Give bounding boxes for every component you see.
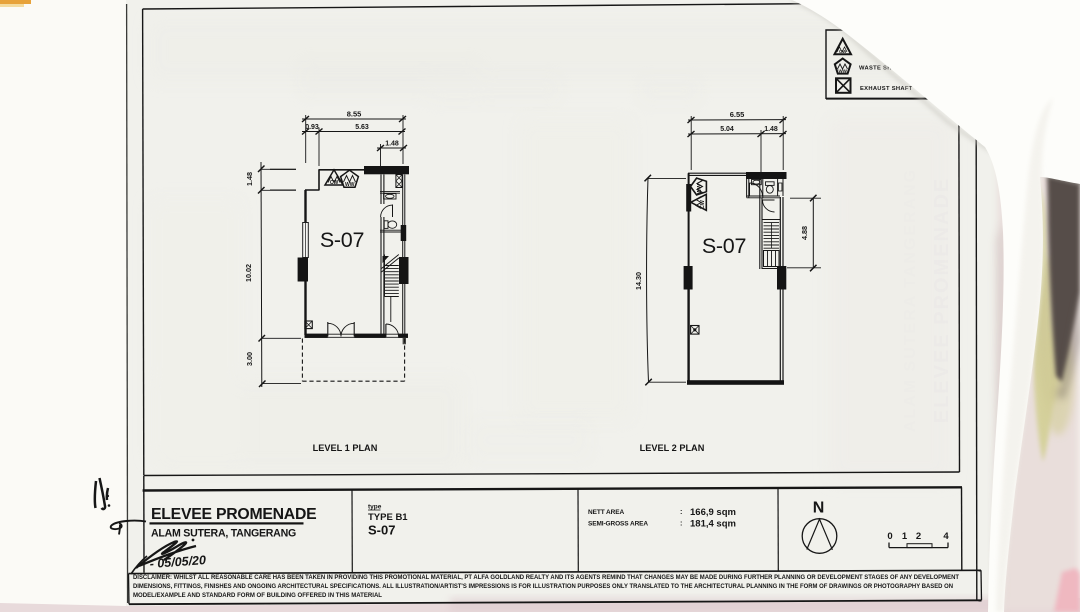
svg-text:CW: CW	[839, 49, 847, 54]
svg-text:ELEVEE PROMENADE: ELEVEE PROMENADE	[931, 177, 953, 423]
svg-text:WW: WW	[838, 69, 847, 74]
svg-text:SEMI-GROSS AREA: SEMI-GROSS AREA	[588, 521, 648, 528]
svg-text:3.00: 3.00	[245, 352, 254, 366]
svg-text:S-07: S-07	[702, 234, 746, 258]
svg-text:166,9 sqm: 166,9 sqm	[690, 507, 736, 518]
svg-text:ALAM SUTERA TANGERANG: ALAM SUTERA TANGERANG	[902, 168, 919, 432]
svg-text:1.48: 1.48	[764, 126, 778, 133]
svg-text:14.30: 14.30	[634, 272, 643, 290]
svg-text::: :	[680, 519, 682, 528]
svg-text:6.55: 6.55	[730, 110, 745, 119]
svg-text:type: type	[368, 504, 382, 511]
svg-text:WW: WW	[697, 184, 703, 194]
svg-text:4.88: 4.88	[800, 226, 809, 240]
svg-text:ELEVEE PROMENADE: ELEVEE PROMENADE	[151, 506, 316, 523]
svg-text:N: N	[813, 500, 825, 517]
svg-text:ALAM SUTERA, TANGERANG: ALAM SUTERA, TANGERANG	[151, 528, 296, 540]
svg-text:181,4 sqm: 181,4 sqm	[690, 519, 736, 530]
svg-text:1.48: 1.48	[385, 141, 399, 148]
svg-text:DISCLAIMER: WHILST ALL REASONA: DISCLAIMER: WHILST ALL REASONABLE CARE H…	[133, 574, 959, 581]
svg-text:8.55: 8.55	[347, 110, 362, 119]
svg-text:NETT AREA: NETT AREA	[588, 509, 624, 516]
svg-text:S-07: S-07	[320, 228, 364, 252]
svg-text:2: 2	[916, 531, 921, 542]
svg-text:CW: CW	[700, 200, 706, 209]
svg-text:1: 1	[902, 531, 908, 542]
svg-text:LEVEL 1 PLAN: LEVEL 1 PLAN	[313, 443, 378, 453]
svg-text:WW: WW	[345, 182, 355, 188]
svg-text:TYPE B1: TYPE B1	[368, 512, 408, 523]
svg-text:1.48: 1.48	[245, 172, 254, 186]
svg-text:5.04: 5.04	[720, 126, 734, 133]
svg-text:5.63: 5.63	[355, 124, 369, 131]
svg-text:10.02: 10.02	[244, 264, 253, 282]
svg-text:MODEL/EXAMPLE AND STANDARD FOR: MODEL/EXAMPLE AND STANDARD FORM OF BUILD…	[133, 592, 382, 599]
svg-text:DIMENSIONS, FITTINGS, FINISHES: DIMENSIONS, FITTINGS, FINISHES AND ONGOI…	[133, 583, 953, 590]
svg-text:LEVEL 2 PLAN: LEVEL 2 PLAN	[640, 443, 705, 453]
svg-text:0: 0	[887, 531, 892, 542]
svg-text:S-07: S-07	[368, 523, 395, 538]
svg-text:0.93: 0.93	[305, 124, 319, 131]
svg-text::: :	[680, 507, 682, 516]
svg-text:4: 4	[943, 531, 949, 542]
svg-text:CW: CW	[330, 180, 339, 186]
